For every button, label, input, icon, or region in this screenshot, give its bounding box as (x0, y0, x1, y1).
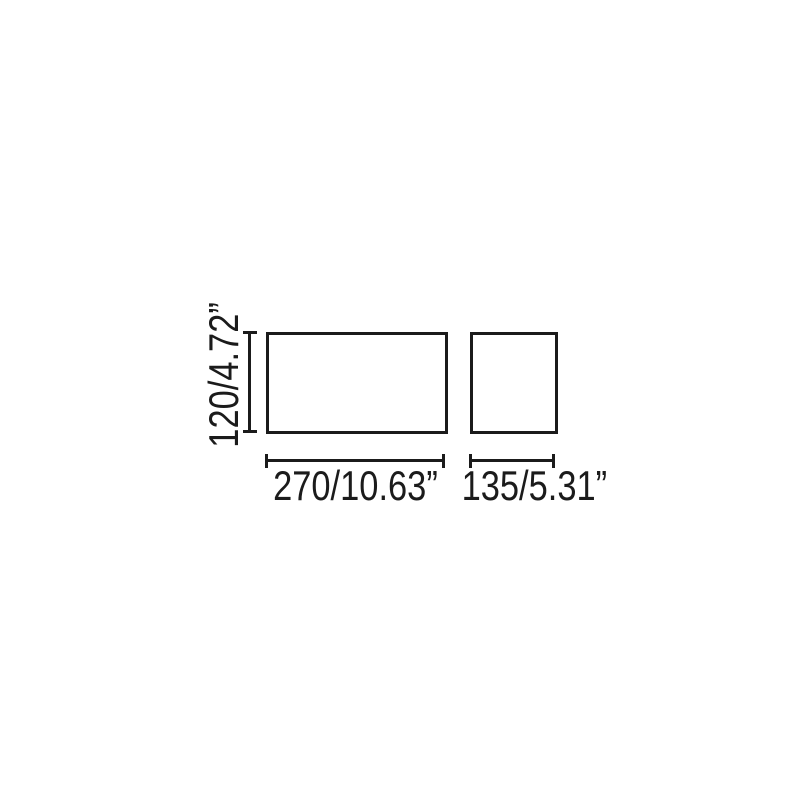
dimension-diagram: 120/4.72” 270/10.63” 135/5.31” (0, 0, 800, 800)
height-dimension-line (248, 332, 251, 433)
side-width-dimension-label: 135/5.31” (462, 465, 577, 507)
height-dimension-label: 120/4.72” (203, 308, 245, 447)
front-width-dimension-right-tick (442, 454, 445, 468)
side-view-rectangle (470, 332, 558, 434)
front-width-dimension-label: 270/10.63” (273, 465, 429, 507)
front-view-rectangle (266, 332, 448, 434)
front-width-dimension-left-tick (265, 454, 268, 468)
